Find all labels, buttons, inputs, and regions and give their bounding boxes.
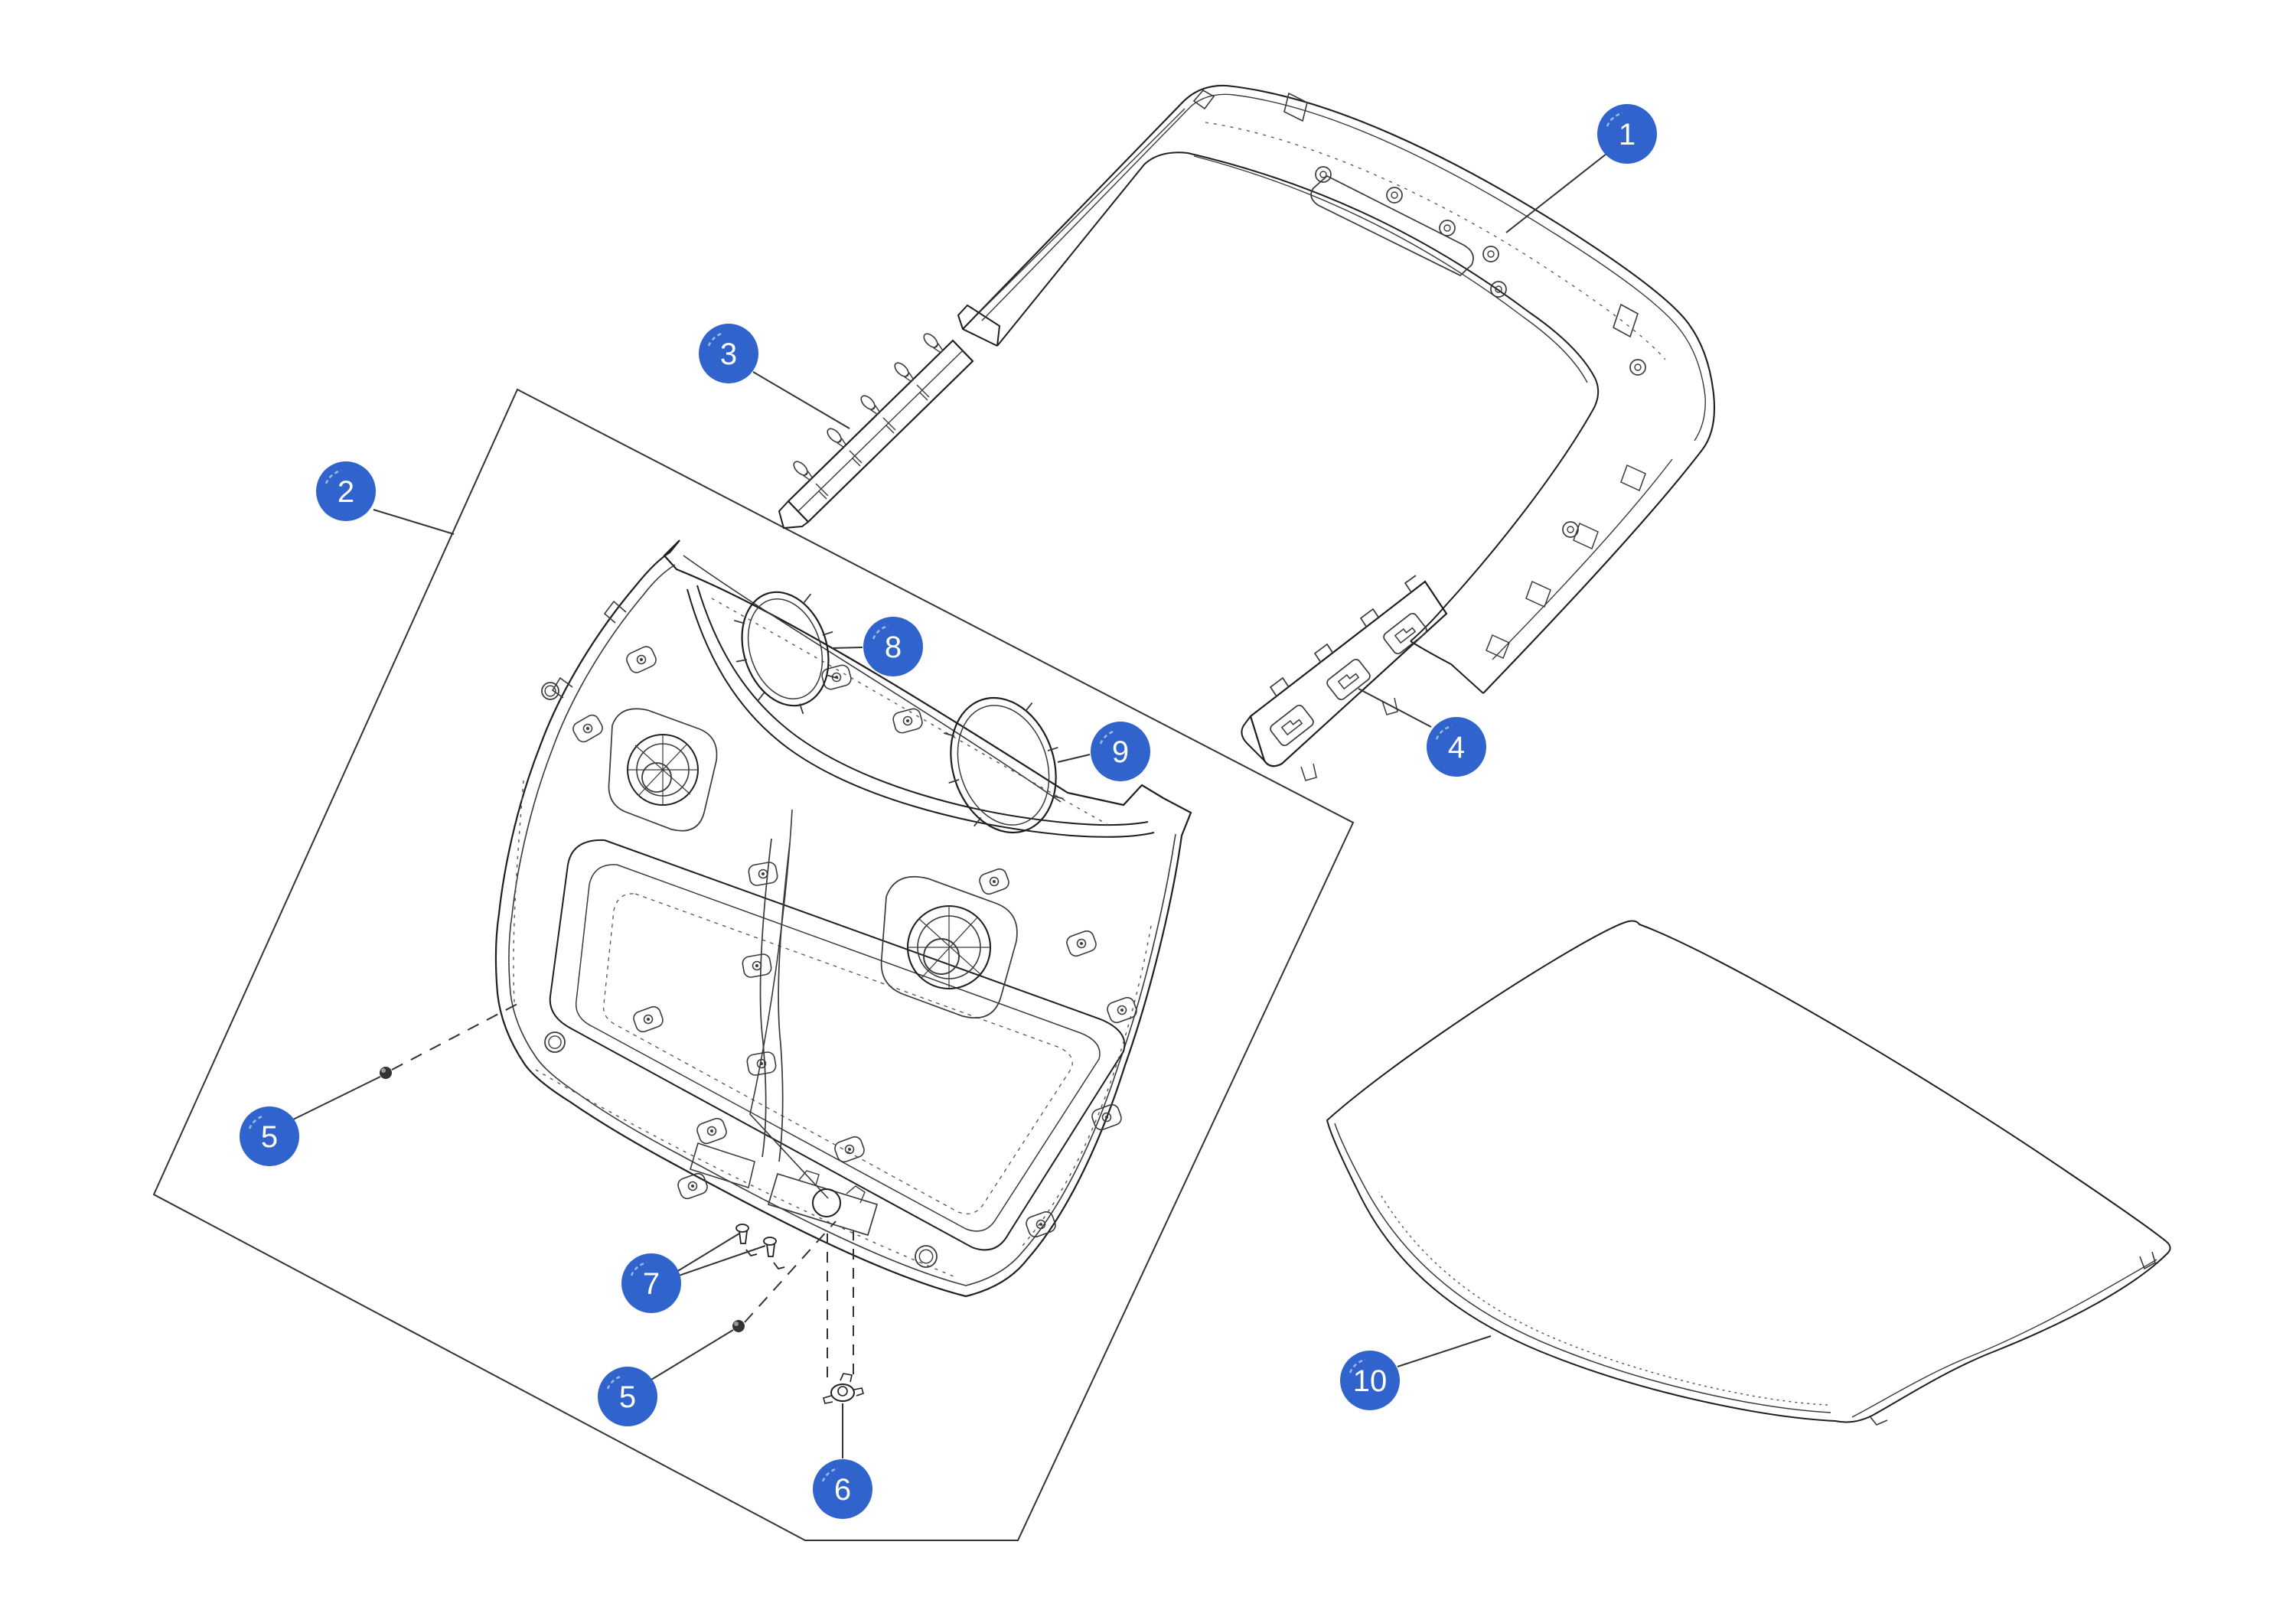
svg-text:9: 9 <box>1112 735 1129 769</box>
svg-text:3: 3 <box>720 337 737 371</box>
svg-text:6: 6 <box>834 1473 851 1507</box>
svg-text:8: 8 <box>885 631 902 664</box>
svg-text:5: 5 <box>619 1380 636 1414</box>
svg-text:10: 10 <box>1353 1364 1388 1398</box>
svg-text:1: 1 <box>1619 118 1636 152</box>
svg-text:2: 2 <box>338 475 354 509</box>
svg-text:7: 7 <box>643 1267 660 1301</box>
svg-text:5: 5 <box>261 1120 278 1154</box>
svg-text:4: 4 <box>1448 731 1465 764</box>
